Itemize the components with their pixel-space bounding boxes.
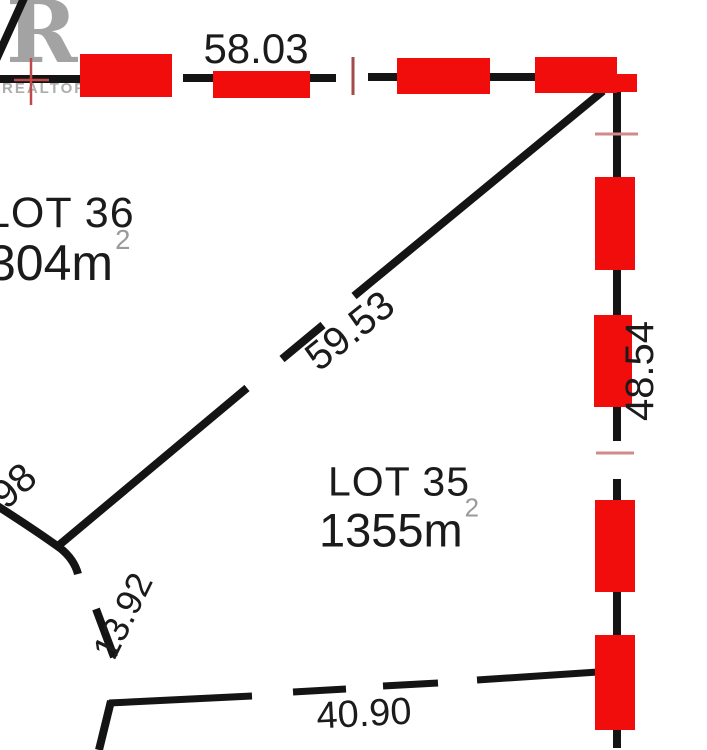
highlight-top-4 — [535, 57, 617, 93]
top-boundary-seg4 — [536, 78, 620, 80]
highlight-segments — [80, 54, 637, 730]
dimension-label-bottom: 40.90 — [316, 693, 413, 736]
lot35-name: LOT 35 — [328, 462, 470, 503]
dimension-label-curve: 13.92 — [87, 568, 159, 665]
dimension-label-right: 48.54 — [620, 321, 660, 421]
highlight-corner-tab — [615, 74, 637, 92]
bottom-dash-2 — [293, 689, 346, 692]
bottom-dash-1 — [109, 696, 252, 703]
lot36-area-superscript: 2 — [115, 224, 130, 255]
dimension-label-top: 58.03 — [203, 28, 308, 70]
survey-plan: R REALTOR® — [0, 0, 707, 750]
diagonal-boundary-seg1 — [354, 91, 603, 296]
highlight-right-4 — [595, 635, 635, 730]
realtor-watermark: R REALTOR® — [0, 0, 100, 104]
lot36-area-value: 304m — [0, 235, 113, 291]
highlight-right-1 — [595, 177, 635, 270]
highlight-top-2 — [213, 71, 310, 98]
diagonal-boundary-seg3 — [58, 388, 247, 546]
dimension-label-diagonal: 59.53 — [298, 284, 401, 378]
realtor-r-logo-icon: R — [6, 0, 77, 81]
realtor-brand-text: REALTOR — [2, 80, 87, 97]
lot35-area: 1355m2 — [319, 507, 479, 554]
lot35-area-superscript: 2 — [465, 495, 479, 523]
dimension-label-arc-partial: 98 — [0, 456, 44, 516]
bottomleft-corner-line — [99, 701, 111, 750]
bottom-dash-4 — [477, 672, 598, 680]
lot36-area: 304m2 — [0, 238, 130, 288]
highlight-right-3 — [595, 500, 635, 592]
bottom-dash-3 — [383, 683, 438, 686]
lot35-area-value: 1355m — [319, 504, 463, 557]
highlight-top-3 — [397, 58, 490, 94]
realtor-wordmark: REALTOR® — [2, 80, 93, 97]
registered-trademark-icon: ® — [87, 80, 93, 89]
